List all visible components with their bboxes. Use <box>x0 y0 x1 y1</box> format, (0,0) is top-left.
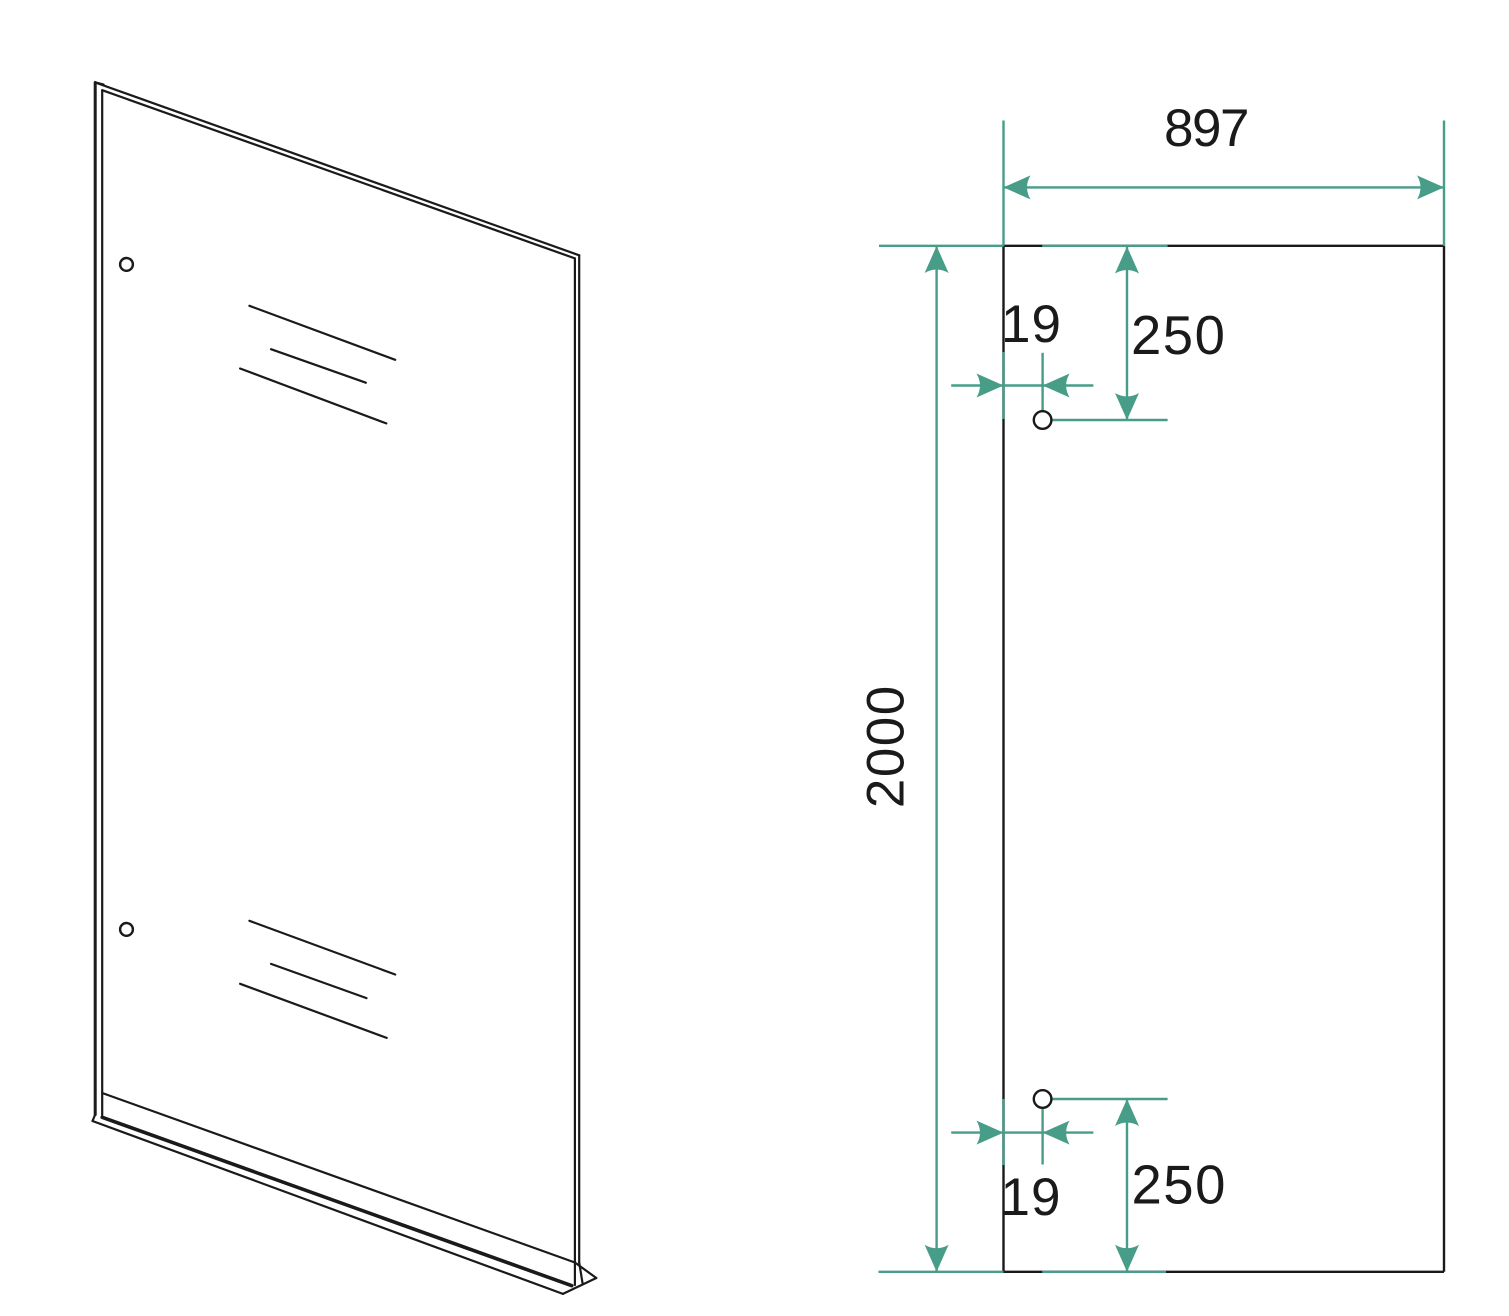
svg-text:19: 19 <box>1001 1168 1062 1227</box>
svg-text:19: 19 <box>1001 295 1062 354</box>
svg-text:897: 897 <box>1164 99 1248 158</box>
svg-text:250: 250 <box>1132 1155 1227 1216</box>
svg-text:250: 250 <box>1131 305 1226 366</box>
svg-text:2000: 2000 <box>857 684 916 808</box>
